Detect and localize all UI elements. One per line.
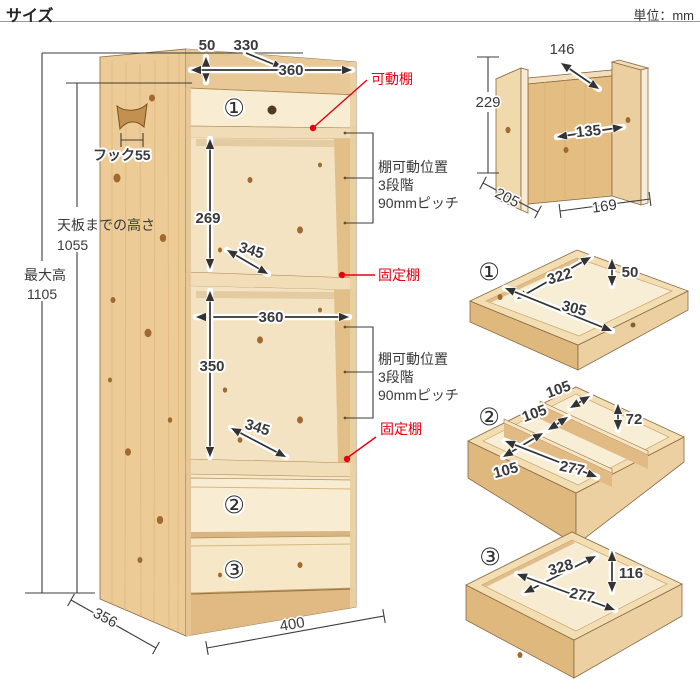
adjust-2-line-1: 棚可動位置 xyxy=(378,351,448,367)
shelf-adjust-label-1: 棚可動位置3段階90mmピッチ xyxy=(378,159,459,211)
dim-width: 400 xyxy=(278,614,306,635)
top-height-label: 天板までの高さ xyxy=(57,217,155,233)
tray-3-illustration: ③328116277 xyxy=(466,532,682,678)
tray-2-number: ② xyxy=(478,404,500,431)
dim-depth: 356 xyxy=(90,605,120,632)
adjust-2-line-3: 90mmピッチ xyxy=(378,387,459,403)
dim-top-thickness: 50 xyxy=(199,37,216,54)
dim-lower-height: 350 xyxy=(199,358,224,375)
drawer-2-face xyxy=(190,478,352,533)
tray-1-number: ① xyxy=(478,259,500,286)
hook-label: フック55 xyxy=(93,147,151,163)
dim-sp-inner-width: 135 xyxy=(575,122,602,142)
drawer-1-knob-hole xyxy=(268,106,277,115)
adjust-2-line-2: 3段階 xyxy=(378,369,414,385)
fixed-shelf-2-dot xyxy=(344,456,350,462)
fixed-shelf-2-label: 固定棚 xyxy=(380,421,422,437)
cabinet-base xyxy=(186,588,356,636)
tray-1-illustration: ①32250305 xyxy=(470,250,688,370)
furniture-dimension-diagram: ①②③ xyxy=(0,0,700,700)
shelf-adjust-label-2: 棚可動位置3段階90mmピッチ xyxy=(378,351,459,403)
top-height-value: 1055 xyxy=(57,237,88,253)
adjust-1-line-1: 棚可動位置 xyxy=(378,159,448,175)
dim-middle-width: 360 xyxy=(258,309,283,326)
cabinet-illustration: ①②③ xyxy=(100,49,356,636)
movable-shelf-dot xyxy=(310,125,316,131)
dim-sp-width: 169 xyxy=(591,196,618,216)
cabinet-drawer-2-number: ② xyxy=(223,492,245,519)
dim-top-inner-width: 330 xyxy=(233,37,258,54)
adjust-1-line-3: 90mmピッチ xyxy=(378,195,459,211)
movable-shelf-label: 可動棚 xyxy=(371,71,413,87)
side-piece-illustration: 146229135205169 xyxy=(475,41,650,218)
tray-2-illustration: ②10510572105277 xyxy=(468,378,684,545)
dim-sp-top-depth: 146 xyxy=(549,41,574,58)
fixed-shelf-1-label: 固定棚 xyxy=(378,267,420,283)
cabinet-drawer-1-number: ① xyxy=(223,95,245,122)
max-height-label: 最大高 xyxy=(24,267,66,283)
fixed-shelf-1-dot xyxy=(339,272,345,278)
cabinet-drawer-3-number: ③ xyxy=(223,557,245,584)
dim-t2-height: 72 xyxy=(626,411,643,428)
dim-t1-height: 50 xyxy=(622,264,639,281)
tray-3-number: ③ xyxy=(479,544,501,571)
dim-t3-height: 116 xyxy=(619,565,643,582)
dim-sp-height: 229 xyxy=(475,94,500,111)
max-height-value: 1105 xyxy=(27,286,57,302)
size-diagram-page: サイズ 単位：mm xyxy=(0,0,700,700)
dim-upper-height: 269 xyxy=(195,210,220,227)
adjust-1-line-2: 3段階 xyxy=(378,177,414,193)
dim-top-width: 360 xyxy=(278,62,303,79)
